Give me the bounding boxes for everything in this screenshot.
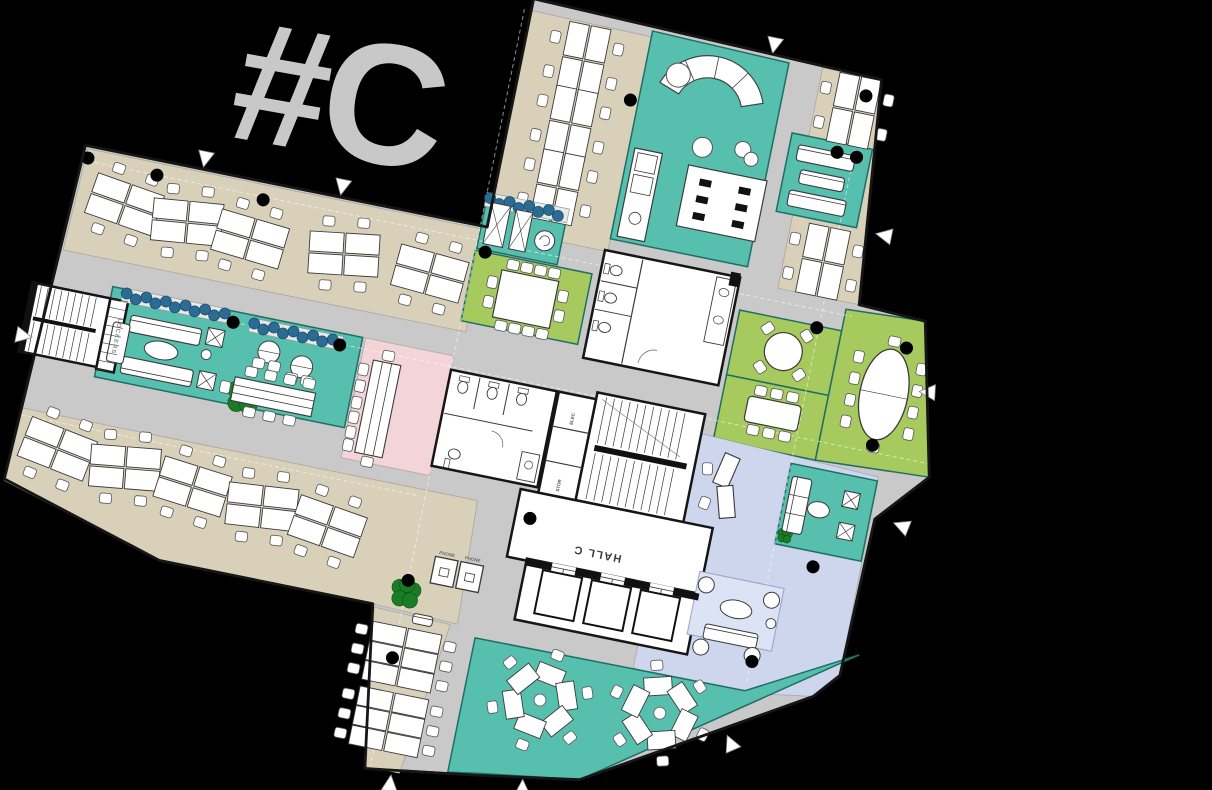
office-floor-plan: HALL CPHONEPHONELOCKERSELECSTOR	[0, 0, 1212, 790]
rotated-plan-group: HALL CPHONEPHONELOCKERSELECSTOR	[0, 0, 1009, 790]
door-marker	[381, 774, 399, 790]
column	[472, 144, 487, 159]
door-marker	[196, 150, 215, 169]
armchair	[205, 328, 225, 348]
armchair	[196, 371, 216, 391]
armchair	[836, 522, 855, 541]
door-marker	[720, 732, 741, 753]
armchair	[842, 491, 861, 510]
door-marker	[890, 515, 911, 536]
door-marker	[514, 779, 530, 790]
door-marker	[333, 178, 352, 197]
door-marker	[874, 226, 893, 245]
floor-plan-canvas: #C HALL CPHONEPHONELOCKERSELECSTOR	[0, 0, 1212, 790]
